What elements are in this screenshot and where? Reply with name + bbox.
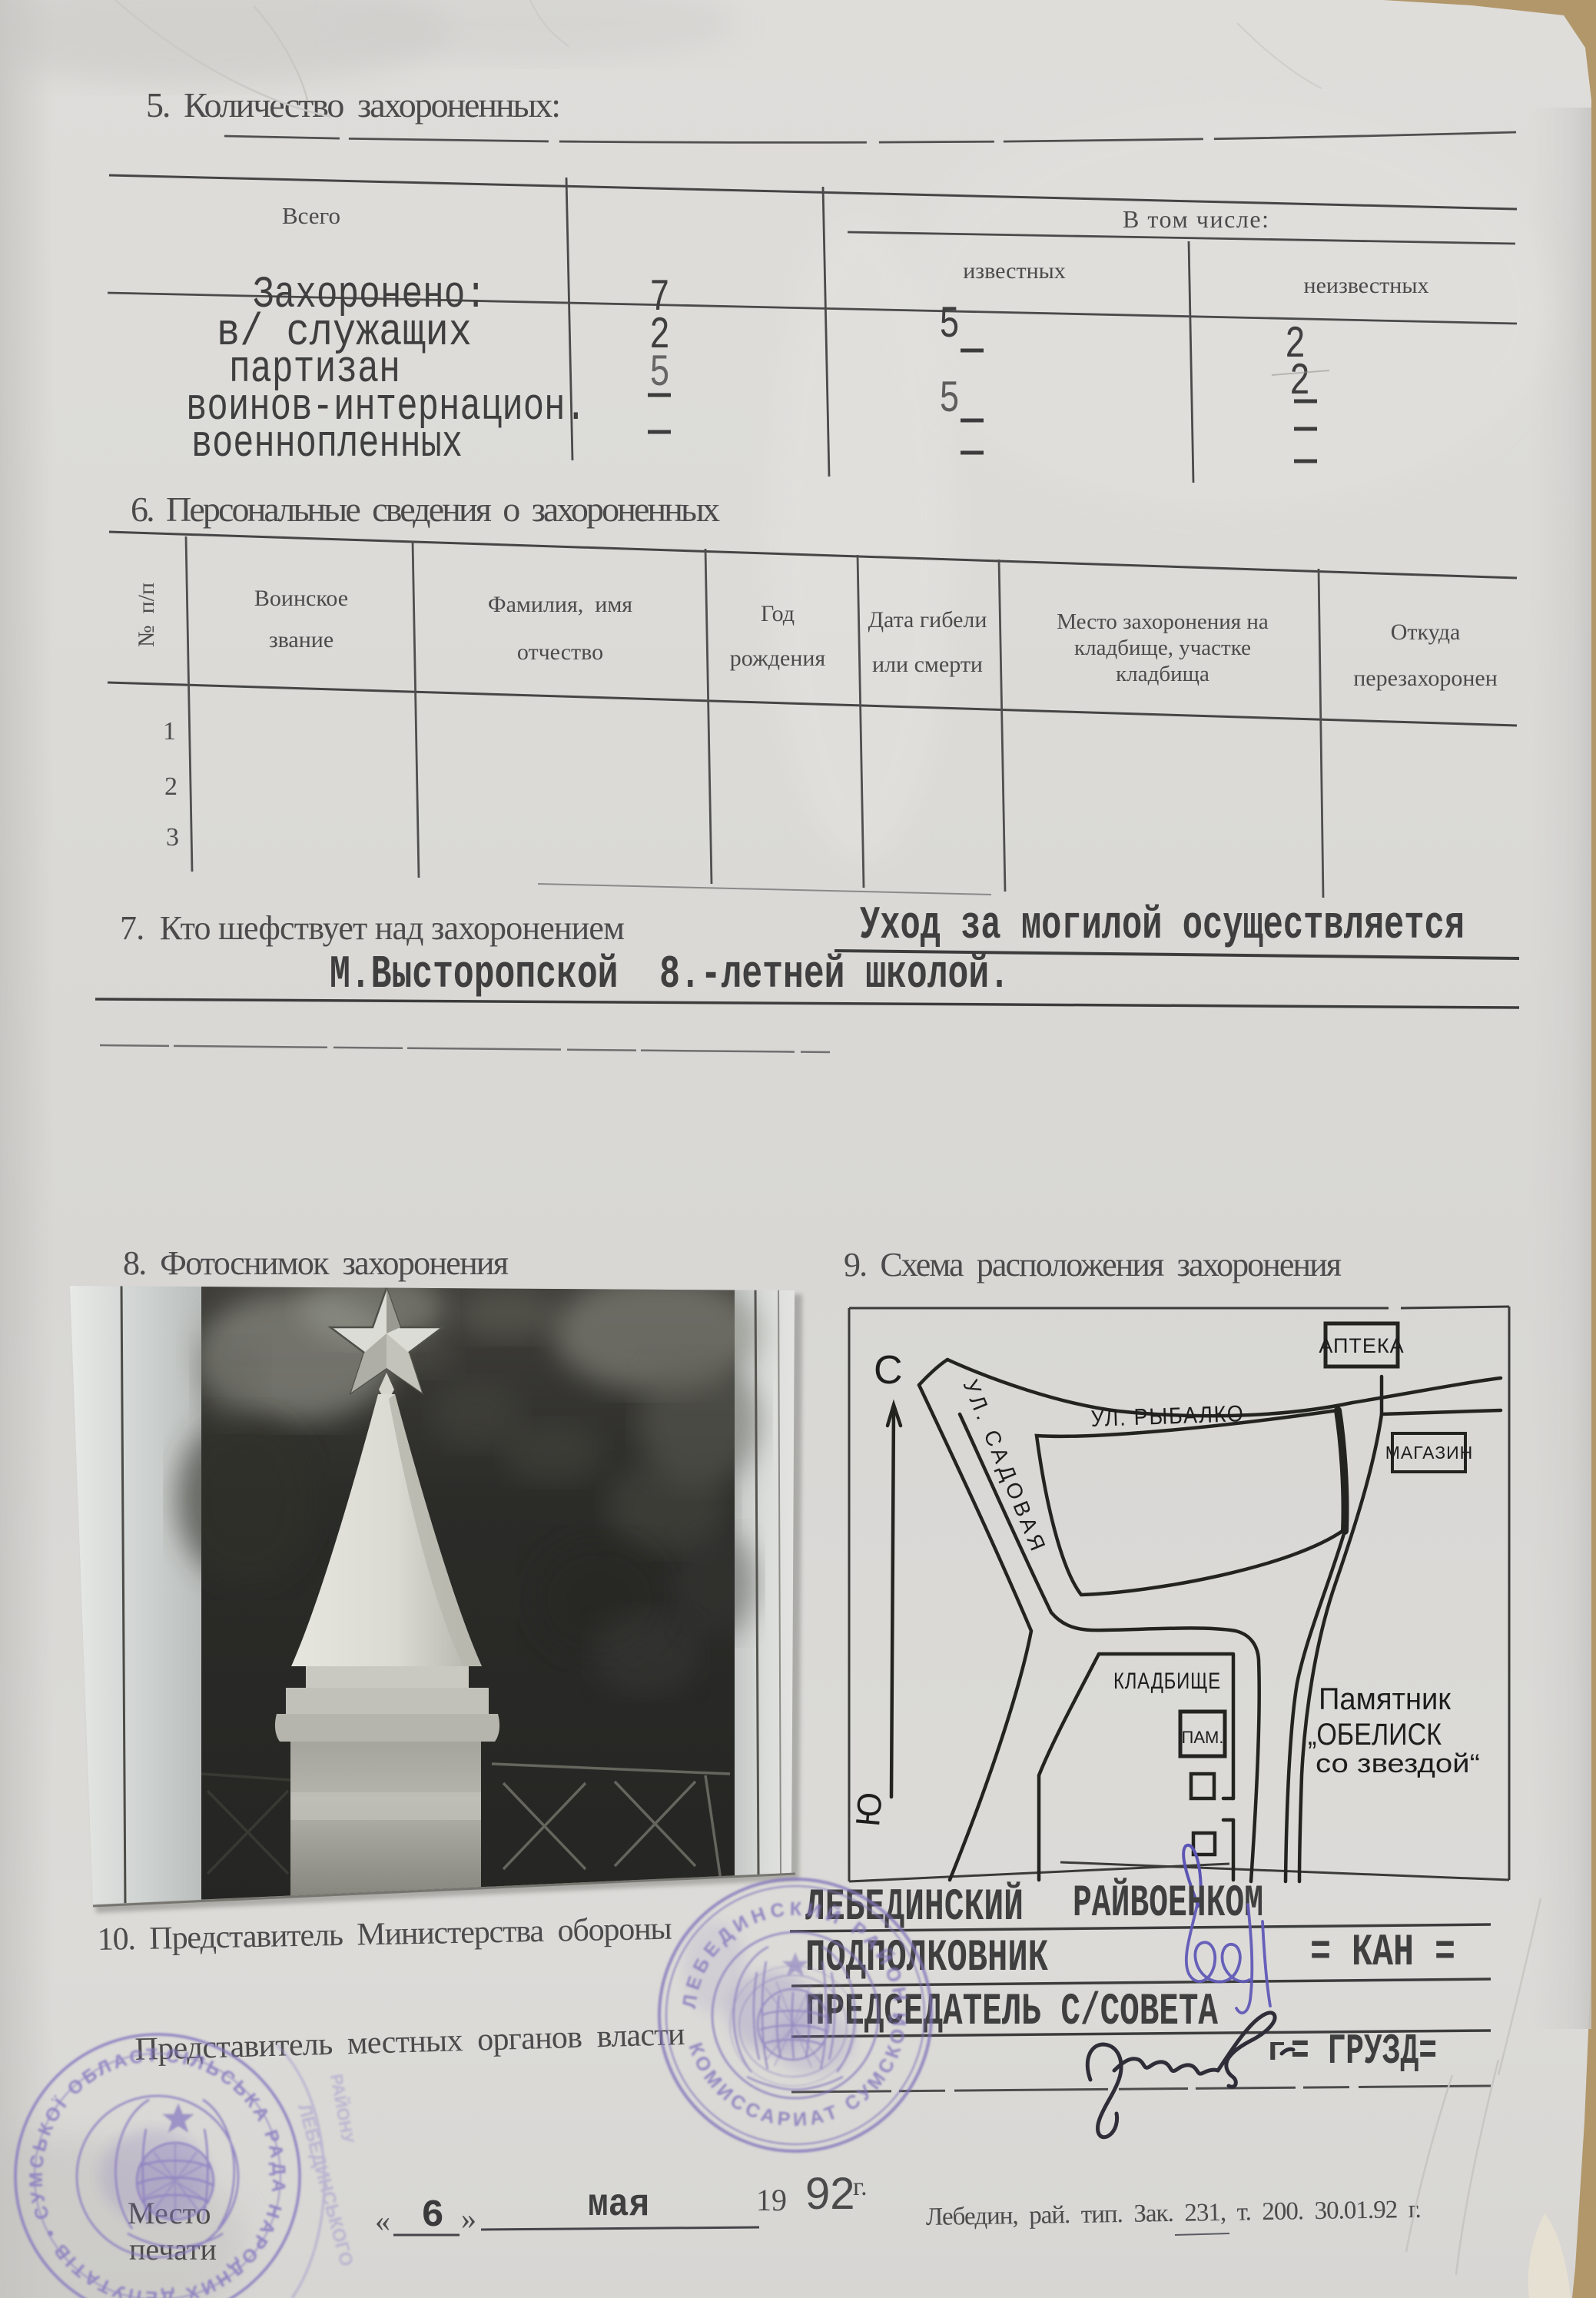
svg-text:»: » (461, 2201, 476, 2236)
svg-text:печати: печати (129, 2232, 217, 2266)
svg-text:19: 19 (756, 2183, 787, 2217)
svg-text:Воинское: Воинское (254, 586, 348, 611)
svg-text:С: С (874, 1348, 903, 1393)
svg-text:5: 5 (939, 375, 960, 425)
svg-text:УЛ. РЫБАЛКО: УЛ. РЫБАЛКО (1090, 1401, 1245, 1432)
svg-text:рождения: рождения (730, 646, 826, 671)
svg-text:ПАМ.: ПАМ. (1182, 1728, 1224, 1747)
svg-text:«: « (375, 2203, 390, 2238)
svg-text:мая: мая (588, 2183, 649, 2227)
svg-text:военнопленных: военнопленных (191, 420, 463, 470)
svg-text:= ГРУЗД=: = ГРУЗД= (1291, 2027, 1437, 2076)
svg-text:7. Кто шефствует над захороне: 7. Кто шефствует над захоронением (120, 909, 625, 947)
svg-text:Фамилия, имя: Фамилия, имя (488, 592, 632, 617)
svg-text:Год: Год (761, 601, 795, 626)
svg-text:6. Персональные сведения о: 6. Персональные сведения о захороненных (131, 490, 720, 529)
svg-text:= КАН =: = КАН = (1310, 1928, 1455, 1978)
svg-text:5: 5 (649, 349, 670, 399)
svg-text:6: 6 (421, 2194, 444, 2238)
svg-text:1: 1 (163, 717, 176, 746)
svg-text:В том числе:: В том числе: (1123, 205, 1269, 233)
svg-text:г.: г. (853, 2173, 868, 2201)
svg-text:ПРЕДСЕДАТЕЛЬ С/СОВЕТА: ПРЕДСЕДАТЕЛЬ С/СОВЕТА (805, 1988, 1218, 2037)
svg-text:звание: звание (269, 627, 333, 653)
svg-text:5. Количество захороненных:: 5. Количество захороненных: (146, 85, 561, 125)
svg-text:со звездой“: со звездой“ (1316, 1749, 1480, 1778)
svg-text:5: 5 (939, 301, 960, 350)
svg-text:известных: известных (963, 258, 1066, 284)
svg-text:М.Высторопской 8.-летней школ: М.Высторопской 8.-летней школой. (330, 949, 1010, 1001)
svg-text:отчество: отчество (517, 639, 603, 665)
svg-text:РАЙВОЕНКОМ: РАЙВОЕНКОМ (1073, 1878, 1263, 1929)
svg-text:кладбище, участке: кладбище, участке (1074, 636, 1251, 660)
svg-text:2: 2 (164, 772, 178, 801)
svg-text:Всего: Всего (282, 202, 340, 229)
svg-text:„ОБЕЛИСК: „ОБЕЛИСК (1308, 1718, 1442, 1752)
svg-text:перезахоронен: перезахоронен (1353, 666, 1498, 691)
svg-text:неизвестных: неизвестных (1304, 273, 1429, 298)
svg-text:8. Фотоснимок захоронения: 8. Фотоснимок захоронения (123, 1244, 509, 1282)
svg-text:3: 3 (166, 823, 179, 852)
svg-text:КЛАДБИЩЕ: КЛАДБИЩЕ (1113, 1669, 1221, 1694)
svg-text:Ю: Ю (849, 1791, 890, 1828)
svg-text:9. Схема расположения захор: 9. Схема расположения захоронения (844, 1246, 1342, 1283)
svg-text:АПТЕКА: АПТЕКА (1319, 1334, 1404, 1357)
svg-text:Памятник: Памятник (1319, 1682, 1451, 1716)
svg-text:МАГАЗИН: МАГАЗИН (1385, 1443, 1474, 1463)
svg-text:Уход за могилой осуществляется: Уход за могилой осуществляется (860, 900, 1465, 952)
svg-text:Откуда: Откуда (1391, 619, 1461, 645)
svg-text:92: 92 (805, 2169, 855, 2219)
svg-text:№ п/п: № п/п (134, 583, 159, 647)
svg-text:или смерти: или смерти (872, 652, 983, 677)
svg-text:Дата гибели: Дата гибели (868, 607, 987, 633)
svg-text:Место захоронения на: Место захоронения на (1057, 609, 1269, 634)
svg-text:кладбища: кладбища (1116, 662, 1209, 686)
